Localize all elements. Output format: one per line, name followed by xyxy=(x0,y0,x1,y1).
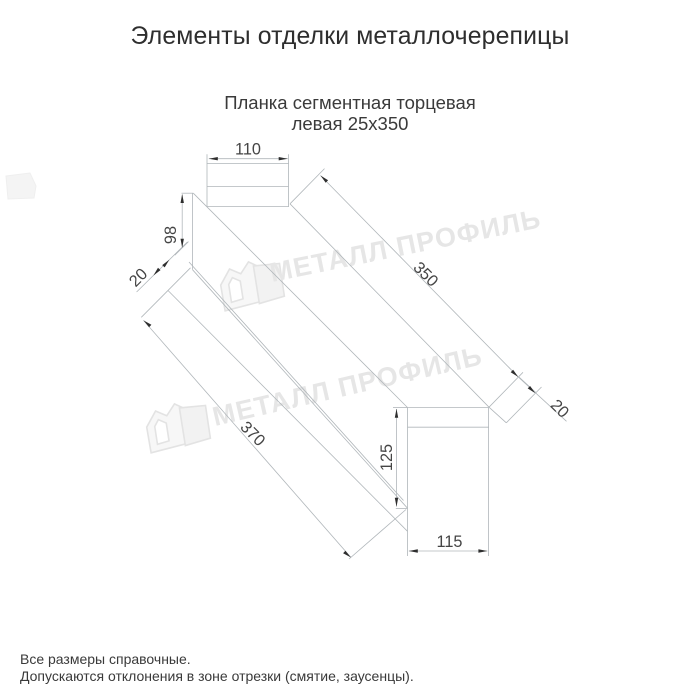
svg-text:МЕТАЛЛ ПРОФИЛЬ: МЕТАЛЛ ПРОФИЛЬ xyxy=(210,340,486,431)
svg-text:МЕТАЛЛ ПРОФИЛЬ: МЕТАЛЛ ПРОФИЛЬ xyxy=(267,203,544,287)
svg-text:350: 350 xyxy=(410,258,442,290)
svg-text:125: 125 xyxy=(378,444,396,471)
svg-text:110: 110 xyxy=(235,140,261,158)
svg-text:20: 20 xyxy=(547,396,573,422)
svg-text:115: 115 xyxy=(437,533,463,551)
svg-text:20: 20 xyxy=(126,265,152,291)
svg-text:98: 98 xyxy=(162,226,180,244)
